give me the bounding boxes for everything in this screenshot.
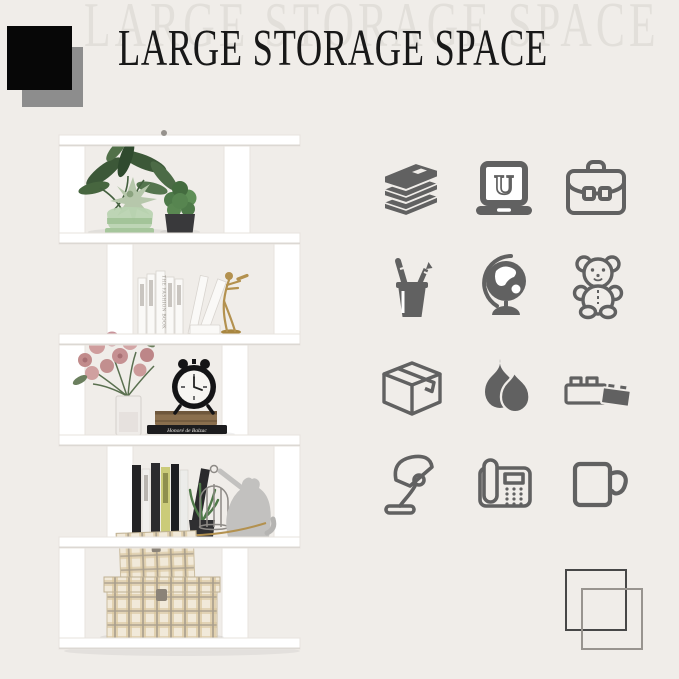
black-square-decor [7,26,72,90]
shelf-knob [161,130,167,136]
storage-icons-grid: U [374,152,634,513]
green-plant [77,136,181,235]
vases-icon [466,351,542,427]
lego-bricks-icon [558,351,634,427]
globe-icon [466,247,542,323]
page-title: LARGE STORAGE SPACE [118,20,548,77]
book-spine-text: THE FASHION BOOK [161,275,166,329]
books-stack-icon [374,152,450,228]
teddy-bear-icon [558,247,634,323]
large-plaid-box [104,577,220,638]
storage-box-icon [374,351,450,427]
laptop-icon: U [466,152,542,228]
product-infographic: LARGE STORAGE SPACE LARGE STORAGE SPACE [0,0,679,679]
mug-icon [558,446,634,522]
white-books-row: THE FASHION BOOK [138,271,226,336]
telephone-icon [466,446,542,522]
alarm-clock [172,359,216,413]
pencil-holder-icon [374,247,450,323]
bookshelf-photo: THE FASHION BOOK [52,128,308,656]
desk-lamp-icon [374,446,450,522]
laptop-screen-letter: U [494,170,514,200]
balzac-book-text: Honoré de Balzac [166,428,207,434]
outline-square-gray-decor [581,588,643,650]
briefcase-icon [558,152,634,228]
